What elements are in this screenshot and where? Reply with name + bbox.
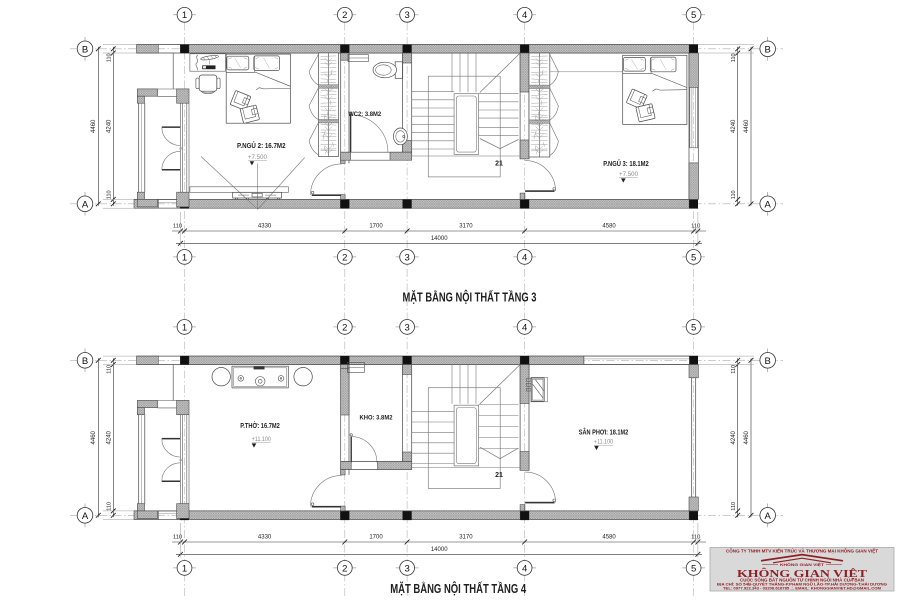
- svg-text:A: A: [765, 511, 772, 522]
- svg-text:4240: 4240: [106, 430, 112, 444]
- svg-text:3: 3: [404, 252, 409, 263]
- svg-text:A: A: [765, 199, 772, 210]
- svg-text:4330: 4330: [258, 224, 272, 230]
- svg-text:+11.100: +11.100: [594, 439, 613, 446]
- svg-text:110: 110: [173, 224, 182, 230]
- svg-text:4580: 4580: [602, 535, 616, 541]
- svg-text:4: 4: [522, 563, 527, 574]
- svg-text:3: 3: [404, 322, 409, 333]
- svg-text:B: B: [82, 356, 88, 367]
- svg-text:110: 110: [106, 53, 112, 62]
- svg-text:KHO: 3.8M2: KHO: 3.8M2: [360, 415, 393, 422]
- svg-text:110: 110: [106, 190, 112, 199]
- svg-text:4240: 4240: [731, 119, 737, 133]
- svg-text:1: 1: [182, 252, 187, 263]
- svg-text:4: 4: [522, 10, 527, 21]
- svg-text:4460: 4460: [744, 119, 750, 133]
- svg-text:4240: 4240: [106, 119, 112, 133]
- svg-text:1: 1: [182, 322, 187, 333]
- svg-text:2: 2: [342, 563, 347, 574]
- svg-text:CÔNG TY TNHH MTV KIẾN TRÚC VÀ: CÔNG TY TNHH MTV KIẾN TRÚC VÀ THƯƠNG MẠI…: [726, 549, 878, 554]
- svg-text:14000: 14000: [431, 236, 448, 242]
- svg-text:5: 5: [691, 563, 696, 574]
- svg-text:2: 2: [342, 10, 347, 21]
- svg-text:1: 1: [182, 563, 187, 574]
- svg-text:+7.500: +7.500: [248, 154, 267, 161]
- svg-text:5: 5: [691, 322, 696, 333]
- svg-text:P.NGỦ 2: 16.7M2: P.NGỦ 2: 16.7M2: [237, 141, 286, 150]
- svg-text:2: 2: [342, 322, 347, 333]
- svg-text:110: 110: [691, 535, 700, 541]
- svg-text:4: 4: [522, 322, 527, 333]
- svg-text:1: 1: [182, 10, 187, 21]
- svg-text:B: B: [765, 44, 771, 55]
- svg-text:4460: 4460: [91, 119, 97, 133]
- svg-text:4330: 4330: [258, 535, 272, 541]
- svg-text:110: 110: [731, 365, 737, 374]
- svg-text:1700: 1700: [369, 535, 383, 541]
- svg-text:110: 110: [691, 224, 700, 230]
- svg-text:4460: 4460: [744, 430, 750, 444]
- svg-text:1700: 1700: [369, 224, 383, 230]
- svg-text:110: 110: [731, 190, 737, 199]
- svg-text:4580: 4580: [602, 224, 616, 230]
- svg-text:3: 3: [404, 10, 409, 21]
- svg-text:A: A: [82, 511, 89, 522]
- svg-text:3: 3: [404, 563, 409, 574]
- svg-text:21: 21: [495, 161, 503, 168]
- svg-text:4: 4: [522, 252, 527, 263]
- svg-text:110: 110: [173, 535, 182, 541]
- svg-text:KHÔNG GIAN VIỆT: KHÔNG GIAN VIỆT: [780, 562, 825, 567]
- svg-text:WC2: 3.8M2: WC2: 3.8M2: [348, 111, 381, 118]
- svg-text:SÂN PHƠI: 18.1M2: SÂN PHƠI: 18.1M2: [579, 428, 629, 437]
- svg-text:TEL: 0977.922.343 - 03206.6167: TEL: 0977.922.343 - 03206.616785 .:. EMA…: [723, 586, 881, 590]
- svg-text:+7.500: +7.500: [619, 171, 638, 178]
- svg-text:5: 5: [691, 10, 696, 21]
- svg-text:MẶT BẰNG NỘI THẤT TẦNG 3: MẶT BẰNG NỘI THẤT TẦNG 3: [403, 290, 537, 305]
- svg-text:A: A: [82, 199, 89, 210]
- svg-text:110: 110: [106, 502, 112, 511]
- svg-text:3170: 3170: [459, 224, 473, 230]
- svg-text:4240: 4240: [731, 430, 737, 444]
- svg-text:+11.100: +11.100: [252, 436, 271, 443]
- svg-text:B: B: [82, 44, 88, 55]
- svg-text:P.NGỦ 3: 18.1M2: P.NGỦ 3: 18.1M2: [603, 159, 649, 168]
- svg-text:MẶT BẰNG NỘI THẤT TẦNG 4: MẶT BẰNG NỘI THẤT TẦNG 4: [390, 581, 526, 596]
- svg-text:5: 5: [691, 252, 696, 263]
- svg-text:110: 110: [731, 502, 737, 511]
- svg-text:2: 2: [342, 252, 347, 263]
- svg-text:110: 110: [731, 53, 737, 62]
- svg-text:4460: 4460: [91, 430, 97, 444]
- svg-text:14000: 14000: [431, 547, 448, 553]
- svg-text:110: 110: [106, 365, 112, 374]
- svg-text:21: 21: [495, 472, 503, 479]
- svg-text:P.THỜ: 16.7M2: P.THỜ: 16.7M2: [240, 421, 280, 430]
- svg-text:B: B: [765, 356, 771, 367]
- svg-text:3170: 3170: [459, 535, 473, 541]
